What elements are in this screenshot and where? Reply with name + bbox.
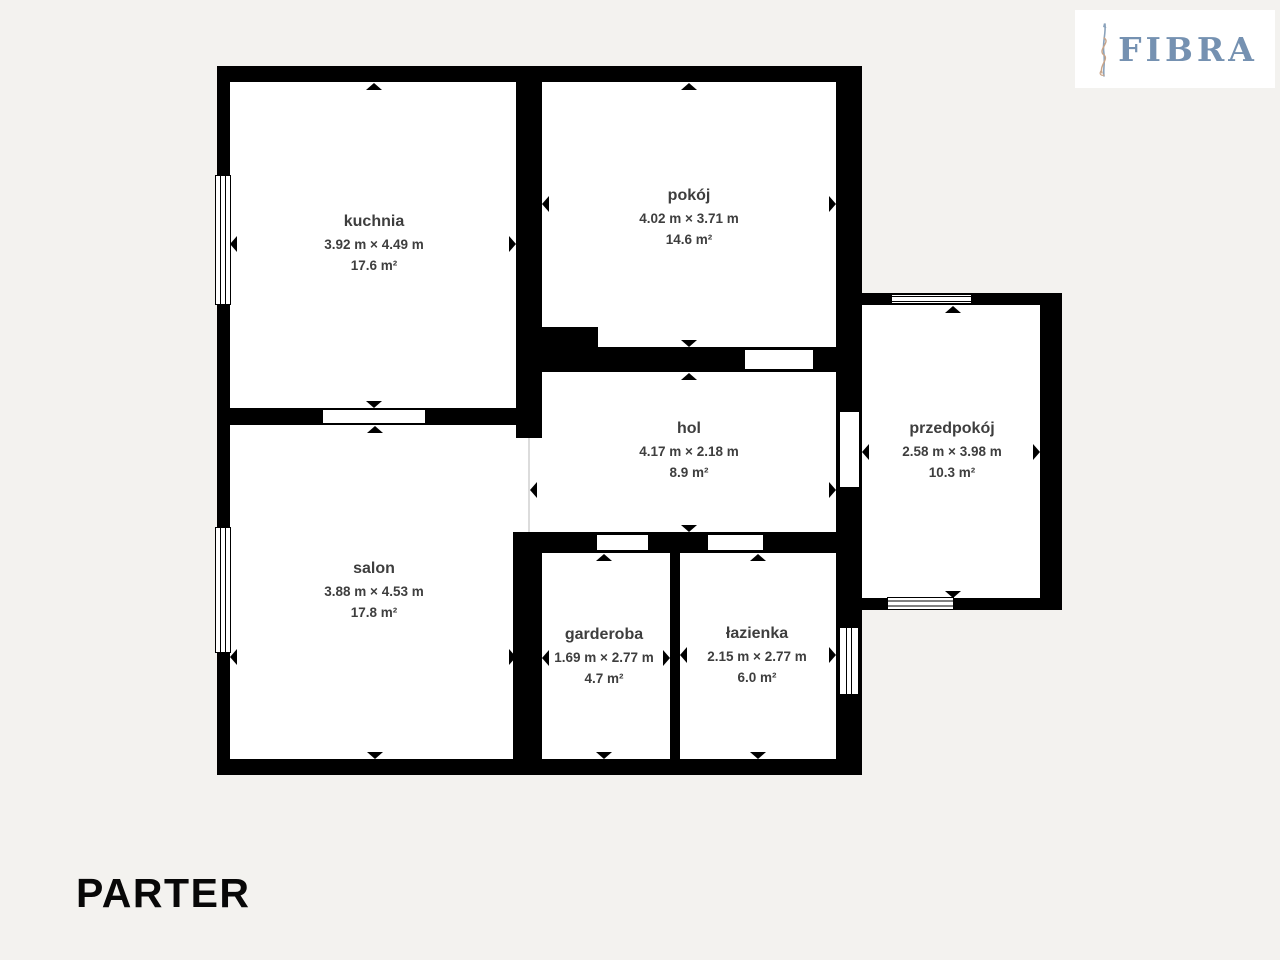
room-label-hol: hol 4.17 m × 2.18 m 8.9 m² [639,420,738,484]
window-salon-left [215,527,231,653]
room-label-kuchnia: kuchnia 3.92 m × 4.49 m 17.6 m² [324,213,423,277]
room-name: pokój [639,187,738,205]
room-dimensions: 1.69 m × 2.77 m [554,648,653,669]
room-name: łazienka [707,625,806,643]
measure-arrow-down-icon [596,752,612,759]
wall-hol-bottom [513,532,862,553]
wall-pokoj-hol [540,347,862,372]
brand-logo: FIBRA [1075,10,1275,88]
measure-arrow-down-icon [367,752,383,759]
measure-arrow-right-icon [1033,444,1040,460]
window-przedpokoj-bottom [887,597,954,610]
window-przedpokoj-top [891,294,972,304]
room-label-salon: salon 3.88 m × 4.53 m 17.8 m² [324,560,423,624]
room-area: 6.0 m² [707,668,806,689]
door-hol-lazienka [708,535,763,550]
measure-arrow-up-icon [596,554,612,561]
window-lazienka-right [839,627,859,695]
wall-pokoj-hol-step [540,327,598,347]
room-name: salon [324,560,423,578]
room-name: garderoba [554,626,653,644]
measure-arrow-up-icon [681,373,697,380]
wall-salon-garderoba [513,532,542,760]
room-area: 17.8 m² [324,603,423,624]
door-kuchnia-salon [323,410,425,423]
floor-title: PARTER [76,870,251,917]
door-pokoj-hol [745,350,813,369]
measure-arrow-up-icon [681,83,697,90]
measure-arrow-up-icon [367,426,383,433]
room-dimensions: 2.58 m × 3.98 m [902,442,1001,463]
window-kuchnia-left [215,175,231,305]
measure-arrow-left-icon [530,482,537,498]
measure-arrow-right-icon [509,236,516,252]
room-name: przedpokój [902,420,1001,438]
measure-arrow-down-icon [750,752,766,759]
room-label-lazienka: łazienka 2.15 m × 2.77 m 6.0 m² [707,625,806,689]
room-label-garderoba: garderoba 1.69 m × 2.77 m 4.7 m² [554,626,653,690]
door-hol-garderoba [597,535,648,550]
measure-arrow-down-icon [945,591,961,598]
room-dimensions: 4.02 m × 3.71 m [639,209,738,230]
room-dimensions: 4.17 m × 2.18 m [639,442,738,463]
measure-arrow-up-icon [750,554,766,561]
measure-arrow-left-icon [542,650,549,666]
room-area: 10.3 m² [902,463,1001,484]
room-dimensions: 3.88 m × 4.53 m [324,582,423,603]
measure-arrow-up-icon [366,83,382,90]
measure-arrow-right-icon [663,650,670,666]
wall-kuchnia-pokoj [516,66,542,438]
room-area: 17.6 m² [324,256,423,277]
room-area: 4.7 m² [554,669,653,690]
room-name: kuchnia [324,213,423,231]
measure-arrow-right-icon [829,482,836,498]
fibra-stem-ornament-icon [1092,21,1116,77]
measure-arrow-left-icon [542,196,549,212]
room-area: 8.9 m² [639,463,738,484]
brand-name: FIBRA [1118,33,1258,66]
measure-arrow-left-icon [230,236,237,252]
wall-bottom [217,759,862,775]
measure-arrow-right-icon [509,649,516,665]
measure-arrow-down-icon [366,401,382,408]
door-hol-przedpokoj [840,412,859,487]
room-name: hol [639,420,738,438]
room-label-przedpokoj: przedpokój 2.58 m × 3.98 m 10.3 m² [902,420,1001,484]
measure-arrow-left-icon [862,444,869,460]
measure-arrow-down-icon [681,340,697,347]
room-dimensions: 2.15 m × 2.77 m [707,647,806,668]
floor-plan-page: kuchnia 3.92 m × 4.49 m 17.6 m² pokój 4.… [0,0,1280,960]
measure-arrow-right-icon [829,647,836,663]
measure-arrow-left-icon [680,647,687,663]
wall-garderoba-lazienka [670,553,680,760]
measure-arrow-right-icon [829,196,836,212]
room-dimensions: 3.92 m × 4.49 m [324,235,423,256]
room-area: 14.6 m² [639,230,738,251]
wall-przedpokoj-right [1040,293,1062,610]
measure-arrow-up-icon [945,306,961,313]
measure-arrow-down-icon [681,525,697,532]
room-label-pokoj: pokój 4.02 m × 3.71 m 14.6 m² [639,187,738,251]
measure-arrow-left-icon [230,649,237,665]
